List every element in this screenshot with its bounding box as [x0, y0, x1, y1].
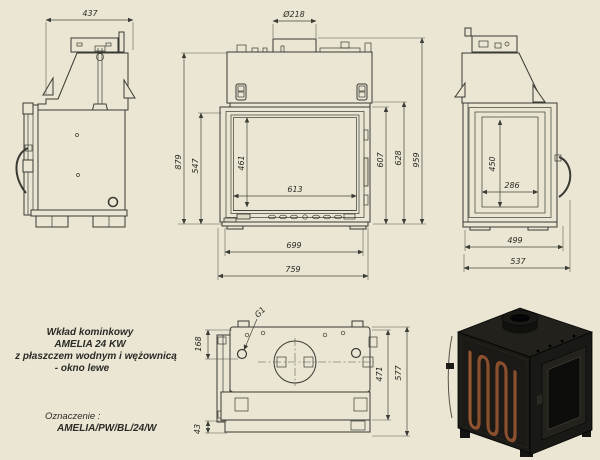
- fitting-stub: [119, 32, 124, 52]
- title-line1: Wkład kominkowy: [47, 327, 134, 338]
- title-line2: AMELIA 24 KW: [53, 339, 127, 350]
- dim-flue-offset: 168: [194, 336, 203, 351]
- dim-side-glass-width: 286: [504, 181, 519, 190]
- cable-clip: [446, 363, 454, 369]
- fitting-stub-right: [465, 28, 471, 36]
- designation-label: Oznaczenie :: [45, 411, 101, 422]
- firebox-band: [221, 392, 370, 420]
- dim-base-ledge: 43: [193, 424, 202, 434]
- dim-total-depth: 537: [510, 257, 526, 266]
- dim-left-top-width: 437: [82, 9, 98, 18]
- lug-left: [238, 321, 249, 327]
- dim-frame-height: 628: [394, 150, 403, 165]
- dim-inner-depth: 471: [375, 366, 384, 381]
- title-line4: - okno lewe: [55, 363, 110, 374]
- drawing-sheet: 437: [0, 0, 600, 460]
- render-flue-hole: [510, 314, 530, 322]
- render-window-glass: [548, 357, 580, 430]
- jacket-lip: [230, 103, 370, 107]
- dim-glass-width: 613: [287, 185, 302, 194]
- dim-total-width: 759: [285, 265, 300, 274]
- dim-glass-height: 461: [237, 155, 246, 170]
- dim-body-depth: 499: [507, 236, 522, 245]
- dim-total-height: 959: [412, 152, 421, 167]
- dim-door-width: 699: [286, 241, 301, 250]
- dim-side-glass-height: 450: [488, 156, 497, 171]
- dim-plan-total-depth: 577: [394, 364, 403, 380]
- hinge-bottom: [23, 160, 33, 172]
- technical-drawing: 437: [0, 0, 600, 460]
- lug-right: [352, 321, 363, 327]
- body-side: [38, 110, 125, 210]
- dim-body-height: 879: [174, 154, 183, 169]
- designation-value: AMELIA/PW/BL/24/W: [56, 423, 158, 434]
- dim-glass-frame-height: 547: [191, 157, 200, 173]
- base-band: [31, 210, 127, 216]
- base-strip: [222, 222, 368, 226]
- hinge-top: [23, 103, 33, 114]
- side-window-frame: [463, 103, 557, 222]
- lock-bar: [364, 158, 368, 186]
- dim-flue-diameter: Ø218: [282, 9, 305, 19]
- title-line3: z płaszczem wodnym i wężownicą: [14, 351, 177, 362]
- flue-collar: [273, 39, 316, 52]
- vent-slider: [237, 214, 250, 219]
- water-jacket-box: [227, 52, 372, 103]
- bottom-ledge: [225, 420, 370, 432]
- render-3d: [446, 308, 592, 457]
- dim-door-height: 607: [376, 151, 385, 167]
- base-right: [463, 222, 557, 227]
